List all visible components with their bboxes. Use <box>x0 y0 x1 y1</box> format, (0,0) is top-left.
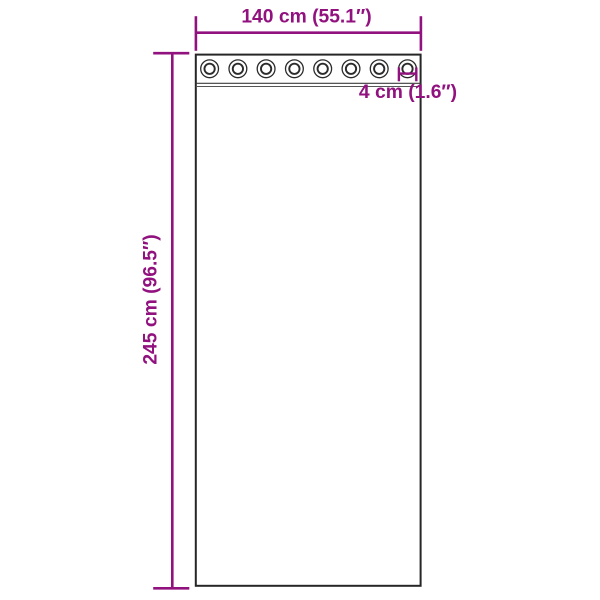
svg-text:140 cm (55.1″): 140 cm (55.1″) <box>241 6 371 27</box>
svg-text:245 cm (96.5″): 245 cm (96.5″) <box>141 234 162 364</box>
svg-text:4 cm (1.6″): 4 cm (1.6″) <box>359 82 457 103</box>
